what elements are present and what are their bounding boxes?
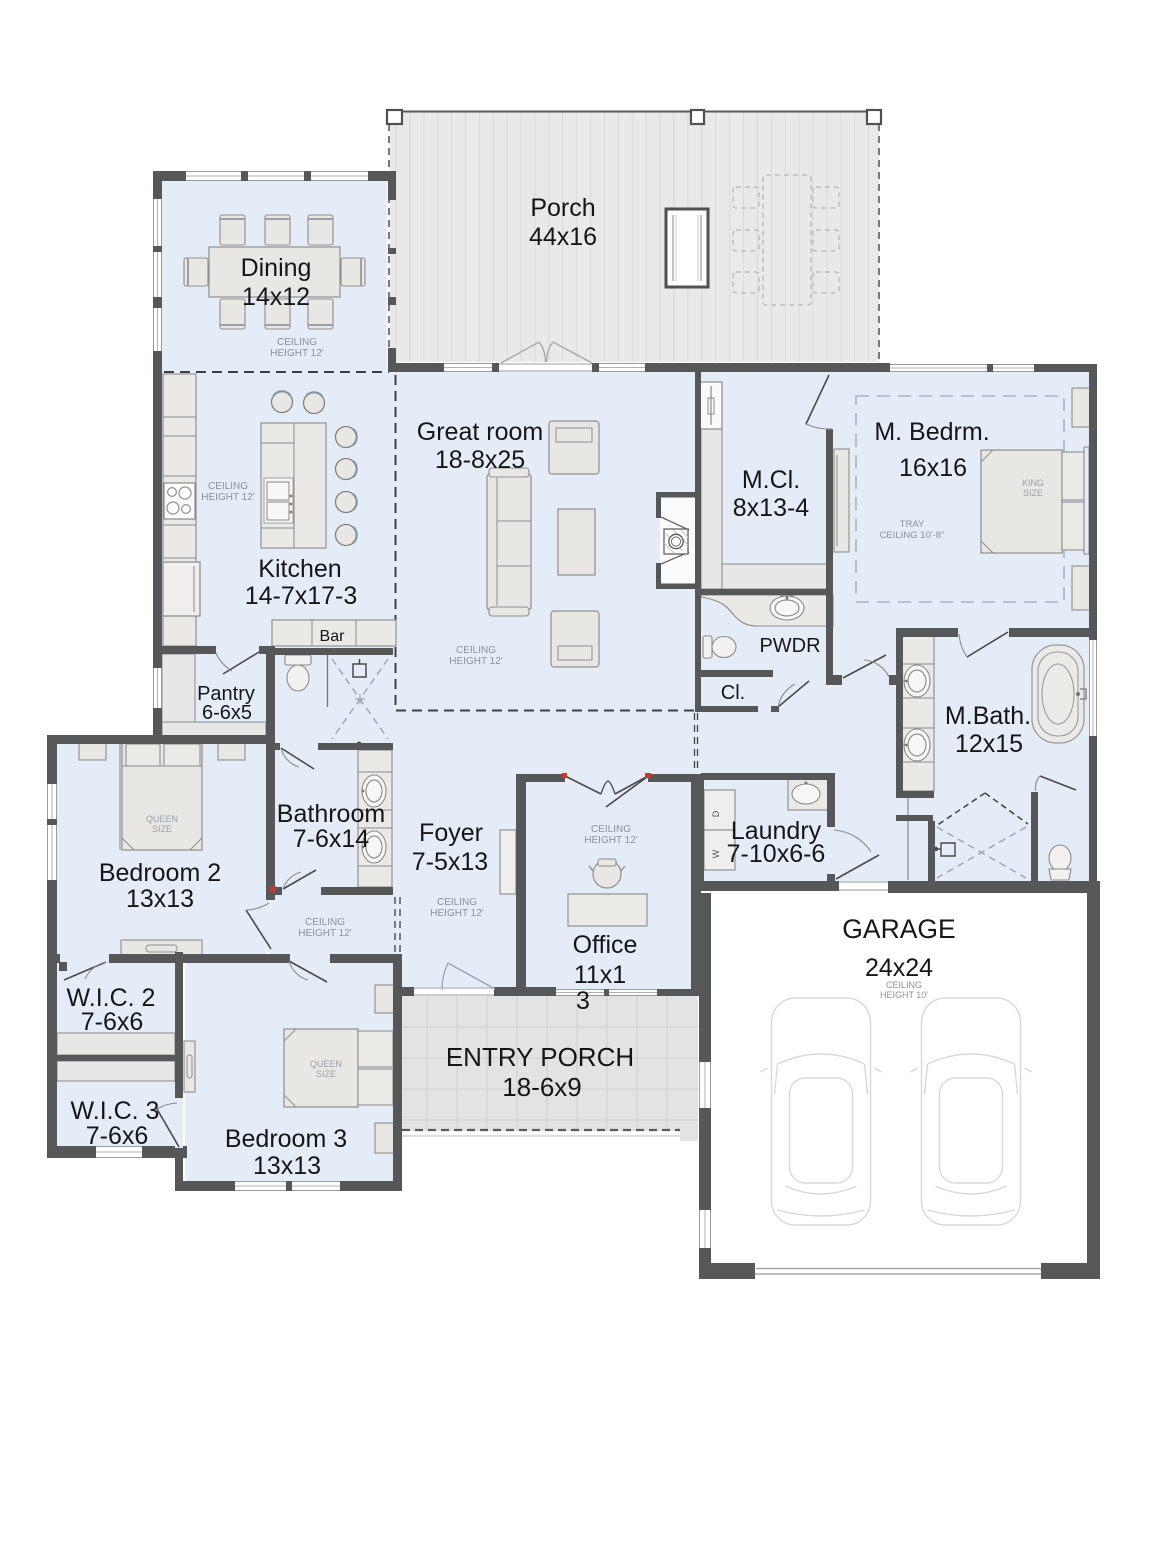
svg-text:HEIGHT 12': HEIGHT 12' xyxy=(201,492,254,503)
svg-text:8x13-4: 8x13-4 xyxy=(733,494,810,522)
svg-text:16x16: 16x16 xyxy=(899,454,967,482)
svg-text:Dining: Dining xyxy=(241,254,312,282)
svg-text:7-6x6: 7-6x6 xyxy=(81,1008,144,1036)
svg-text:11x1: 11x1 xyxy=(574,961,626,989)
svg-text:Office: Office xyxy=(573,931,638,959)
svg-text:QUEEN: QUEEN xyxy=(146,814,178,824)
svg-text:7-10x6-6: 7-10x6-6 xyxy=(727,840,826,868)
svg-text:13x13: 13x13 xyxy=(253,1152,321,1180)
svg-text:12x15: 12x15 xyxy=(955,730,1023,758)
svg-text:18-8x25: 18-8x25 xyxy=(435,446,525,474)
svg-text:HEIGHT 12': HEIGHT 12' xyxy=(430,908,483,919)
svg-text:7-5x13: 7-5x13 xyxy=(412,848,488,876)
svg-text:CEILING: CEILING xyxy=(277,337,317,348)
svg-text:6-6x5: 6-6x5 xyxy=(202,702,252,724)
svg-text:TRAY: TRAY xyxy=(900,519,925,530)
svg-text:44x16: 44x16 xyxy=(529,223,597,251)
svg-text:3: 3 xyxy=(576,987,590,1015)
svg-text:CEILING: CEILING xyxy=(886,980,922,990)
svg-text:GARAGE: GARAGE xyxy=(842,914,955,944)
svg-text:CEILING: CEILING xyxy=(591,824,631,835)
svg-text:Bathroom: Bathroom xyxy=(277,800,385,828)
svg-text:PWDR: PWDR xyxy=(759,635,820,657)
svg-text:7-6x14: 7-6x14 xyxy=(293,825,370,853)
svg-text:Porch: Porch xyxy=(530,194,595,222)
svg-text:CEILING 10'-8": CEILING 10'-8" xyxy=(880,530,945,541)
svg-text:Bedroom 2: Bedroom 2 xyxy=(99,859,221,887)
svg-text:M.Bath.: M.Bath. xyxy=(945,702,1031,730)
svg-text:HEIGHT 12': HEIGHT 12' xyxy=(298,928,351,939)
svg-text:CEILING: CEILING xyxy=(456,645,496,656)
svg-text:M.Cl.: M.Cl. xyxy=(742,466,800,494)
svg-text:HEIGHT 12': HEIGHT 12' xyxy=(270,348,323,359)
svg-text:M. Bedrm.: M. Bedrm. xyxy=(874,418,989,446)
svg-text:HEIGHT 12': HEIGHT 12' xyxy=(584,835,637,846)
svg-text:CEILING: CEILING xyxy=(437,897,477,908)
svg-text:ENTRY PORCH: ENTRY PORCH xyxy=(446,1042,634,1072)
svg-text:HEIGHT 12': HEIGHT 12' xyxy=(449,656,502,667)
svg-text:W: W xyxy=(711,849,721,858)
svg-text:14-7x17-3: 14-7x17-3 xyxy=(245,582,358,610)
svg-text:Great room: Great room xyxy=(417,418,543,446)
svg-text:14x12: 14x12 xyxy=(242,283,310,311)
svg-text:Bedroom 3: Bedroom 3 xyxy=(225,1125,347,1153)
svg-text:13x13: 13x13 xyxy=(126,885,194,913)
svg-text:7-6x6: 7-6x6 xyxy=(86,1122,149,1150)
svg-text:HEIGHT 10': HEIGHT 10' xyxy=(880,990,928,1000)
svg-text:24x24: 24x24 xyxy=(865,954,933,982)
svg-text:W.I.C. 3: W.I.C. 3 xyxy=(71,1097,160,1125)
svg-text:D: D xyxy=(711,810,721,817)
svg-text:CEILING: CEILING xyxy=(208,481,248,492)
svg-text:18-6x9: 18-6x9 xyxy=(502,1072,582,1102)
svg-text:SIZE: SIZE xyxy=(152,824,172,834)
svg-text:SIZE: SIZE xyxy=(316,1069,336,1079)
svg-text:KING: KING xyxy=(1022,478,1044,488)
svg-text:Kitchen: Kitchen xyxy=(258,555,341,583)
svg-text:Bar: Bar xyxy=(320,628,346,645)
svg-text:QUEEN: QUEEN xyxy=(310,1059,342,1069)
svg-text:Cl.: Cl. xyxy=(721,682,745,704)
svg-text:CEILING: CEILING xyxy=(305,917,345,928)
svg-text:Foyer: Foyer xyxy=(419,819,483,847)
svg-text:SIZE: SIZE xyxy=(1023,488,1043,498)
